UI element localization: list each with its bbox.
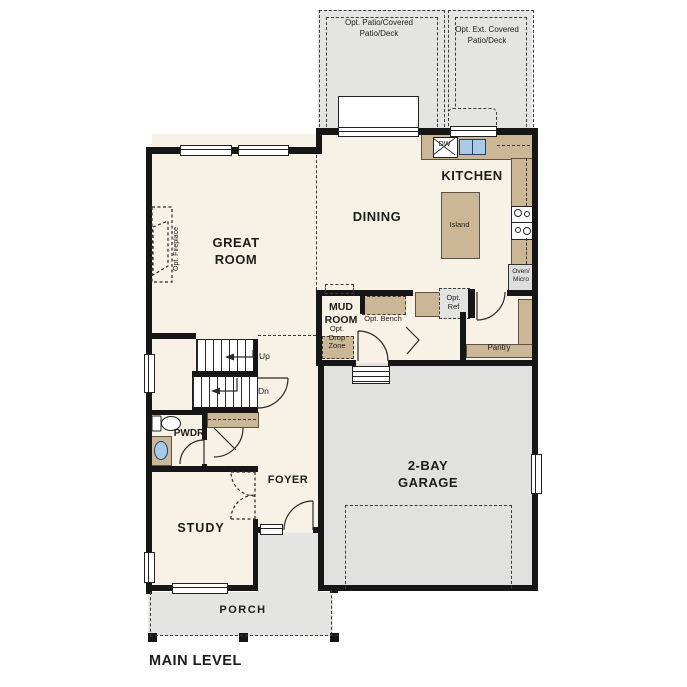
wall-stair-right	[253, 339, 258, 371]
wall-pantry-west	[460, 312, 466, 366]
mud-room-bench	[362, 296, 406, 315]
upper-cabinet-line-top	[497, 145, 530, 146]
wall-hall-great	[146, 333, 196, 339]
hall-counter	[415, 292, 440, 317]
wall-study-right	[253, 519, 258, 585]
dining-sliding-door	[338, 127, 419, 137]
wall-garage-top-left	[318, 360, 356, 366]
wall-stair-divider	[192, 371, 258, 377]
study-window-left	[144, 552, 155, 583]
closet-shelf-rod	[208, 419, 256, 420]
pwdr-label: PWDR	[171, 428, 207, 440]
wall-kitchen-pantry-top	[507, 290, 538, 296]
entry-walk-floor	[258, 533, 318, 592]
opt-ref-label: Opt. Ref	[440, 293, 467, 311]
great-room-window-left	[144, 354, 155, 393]
wall-great-room-top	[146, 147, 322, 154]
kitchen-label: KITCHEN	[432, 168, 512, 184]
study-label: STUDY	[171, 521, 231, 536]
great-room-window-1	[180, 145, 232, 156]
garage-entry-steps	[352, 366, 390, 384]
patio-right-label: Opt. Ext. Covered Patio/Deck	[452, 25, 522, 47]
opt-cabinet-dining-side	[325, 284, 354, 294]
mud-room-label: MUD ROOM	[318, 301, 364, 326]
foyer-label: FOYER	[263, 474, 313, 487]
pantry-label: Pantry	[478, 343, 520, 353]
dining-label: DINING	[337, 209, 417, 225]
closet-shelf	[207, 412, 259, 428]
patio-left-label: Opt. Patio/Covered Patio/Deck	[337, 18, 421, 40]
patio-step	[338, 96, 419, 130]
porch-label: PORCH	[208, 604, 278, 617]
kitchen-patio-door	[450, 126, 497, 137]
great-room-label: GREAT ROOM	[196, 235, 276, 269]
porch-edge-left	[150, 592, 151, 637]
wall-study-top	[146, 466, 258, 472]
stairs-up-label: Up	[259, 351, 279, 361]
garage-door-area	[345, 505, 512, 589]
main-level-label: MAIN LEVEL	[149, 653, 269, 670]
stairs-down-run	[192, 377, 258, 407]
foyer-window	[260, 524, 283, 535]
upper-cabinet-line-right-1	[526, 158, 527, 206]
oven-micro-label: Oven/ Micro	[508, 268, 534, 284]
wall-ref-stub	[468, 289, 475, 318]
wall-pwdr-top	[146, 410, 207, 415]
sink-basin-right	[472, 139, 486, 155]
floor-plan: Opt. Patio/Covered Patio/Deck Opt. Ext. …	[0, 0, 687, 687]
garage-label: 2-BAY GARAGE	[383, 458, 473, 492]
porch-edge-bottom	[150, 635, 338, 636]
great-dining-boundary	[316, 155, 317, 290]
pwdr-sink	[154, 441, 168, 460]
stairs-down-label: Dn	[258, 386, 278, 396]
sink-basin-left	[459, 139, 473, 155]
study-window-bottom	[172, 583, 228, 594]
dishwasher-label: DW	[433, 141, 456, 149]
wall-garage-left	[318, 360, 324, 591]
stairs-up-run	[196, 339, 255, 373]
upper-cabinet-line-right-2	[526, 238, 527, 264]
island-label: Island	[441, 220, 478, 229]
porch-edge-right	[331, 590, 332, 635]
great-room-window-2	[238, 145, 289, 156]
hall-great-boundary	[258, 335, 316, 336]
garage-window-right	[531, 454, 542, 494]
opt-drop-zone-label: Opt. Drop Zone	[322, 325, 352, 351]
opt-fireplace-label: Opt. Fireplace	[173, 210, 184, 288]
opt-bench-label: Opt. Bench	[363, 314, 403, 323]
